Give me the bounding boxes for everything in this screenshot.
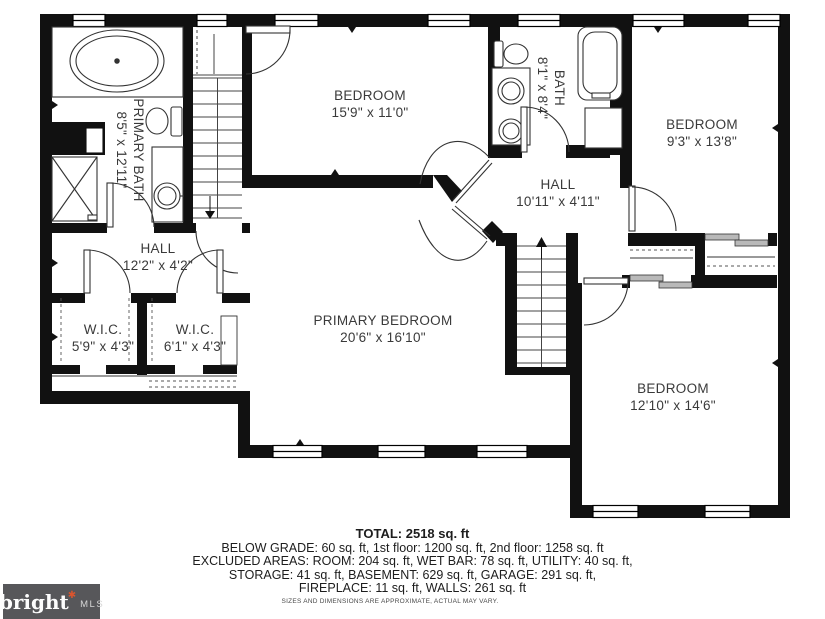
room-label-primary-bath: PRIMARY BATH 8'5" x 12'11" <box>113 98 147 201</box>
room-name: W.I.C. <box>164 321 226 338</box>
room-name: BATH <box>551 57 568 119</box>
room-name: BEDROOM <box>666 116 738 133</box>
door <box>246 26 290 74</box>
toilet-bowl <box>504 44 528 64</box>
summary-line: STORAGE: 41 sq. ft, BASEMENT: 629 sq. ft… <box>0 569 825 583</box>
room-label-primary-bedroom: PRIMARY BEDROOM 20'6" x 16'10" <box>313 312 452 346</box>
room-name: PRIMARY BATH <box>130 98 147 201</box>
room-dims: 10'11" x 4'11" <box>516 193 600 210</box>
summary-line: BELOW GRADE: 60 sq. ft, 1st floor: 1200 … <box>0 542 825 556</box>
toilet-tank <box>494 41 503 67</box>
room-dims: 8'5" x 12'11" <box>113 98 130 201</box>
stairs-lower <box>517 237 566 367</box>
floorplan-page: PRIMARY BATH 8'5" x 12'11" BEDROOM 15'9"… <box>0 0 825 619</box>
room-label-wic-right: W.I.C. 6'1" x 4'3" <box>164 321 226 355</box>
sliding-door <box>630 275 663 281</box>
room-name: HALL <box>516 176 600 193</box>
logo-suffix: MLS <box>80 599 104 610</box>
room-name: BEDROOM <box>630 380 716 397</box>
summary-line: EXCLUDED AREAS: ROOM: 204 sq. ft, WET BA… <box>0 555 825 569</box>
room-label-bedroom-top: BEDROOM 15'9" x 11'0" <box>332 87 409 121</box>
stairs-up-arrow <box>536 237 547 247</box>
room-name: HALL <box>123 240 193 257</box>
door <box>629 186 676 231</box>
room-dims: 12'10" x 14'6" <box>630 397 716 414</box>
area-summary: TOTAL: 2518 sq. ft BELOW GRADE: 60 sq. f… <box>0 527 825 596</box>
total-area: TOTAL: 2518 sq. ft <box>0 527 825 541</box>
linen-closet <box>585 108 622 148</box>
door <box>584 278 628 325</box>
disclaimer-text: SIZES AND DIMENSIONS ARE APPROXIMATE, AC… <box>0 598 780 605</box>
room-dims: 12'2" x 4'2" <box>123 257 193 274</box>
room-dims: 8'1" x 8'4" <box>534 57 551 119</box>
angled-double-door <box>419 141 492 260</box>
tub-faucet <box>592 93 610 98</box>
room-label-hall-left: HALL 12'2" x 4'2" <box>123 240 193 274</box>
toilet-tank <box>171 107 182 136</box>
room-name: BEDROOM <box>332 87 409 104</box>
logo-asterisk-icon: ✱ <box>68 590 76 601</box>
summary-line: FIREPLACE: 11 sq. ft, WALLS: 261 sq. ft <box>0 582 825 596</box>
room-label-bath: BATH 8'1" x 8'4" <box>534 57 568 119</box>
room-dims: 9'3" x 13'8" <box>666 133 738 150</box>
room-dims: 6'1" x 4'3" <box>164 338 226 355</box>
stairs-upper <box>193 30 242 219</box>
room-label-bedroom-bottom: BEDROOM 12'10" x 14'6" <box>630 380 716 414</box>
sliding-door <box>705 234 739 240</box>
room-dims: 20'6" x 16'10" <box>313 329 452 346</box>
logo-brand: bright <box>0 592 69 612</box>
sliding-door <box>735 240 768 246</box>
room-dims: 15'9" x 11'0" <box>332 104 409 121</box>
room-name: W.I.C. <box>72 321 134 338</box>
sliding-door <box>659 282 692 288</box>
room-dims: 5'9" x 4'3" <box>72 338 134 355</box>
room-label-hall-upper: HALL 10'11" x 4'11" <box>516 176 600 210</box>
room-name: PRIMARY BEDROOM <box>313 312 452 329</box>
toilet-bowl <box>146 108 168 134</box>
brightmls-logo: bright ✱ MLS <box>3 584 100 619</box>
room-label-bedroom-right: BEDROOM 9'3" x 13'8" <box>666 116 738 150</box>
room-label-wic-left: W.I.C. 5'9" x 4'3" <box>72 321 134 355</box>
shower-valve <box>88 215 97 220</box>
